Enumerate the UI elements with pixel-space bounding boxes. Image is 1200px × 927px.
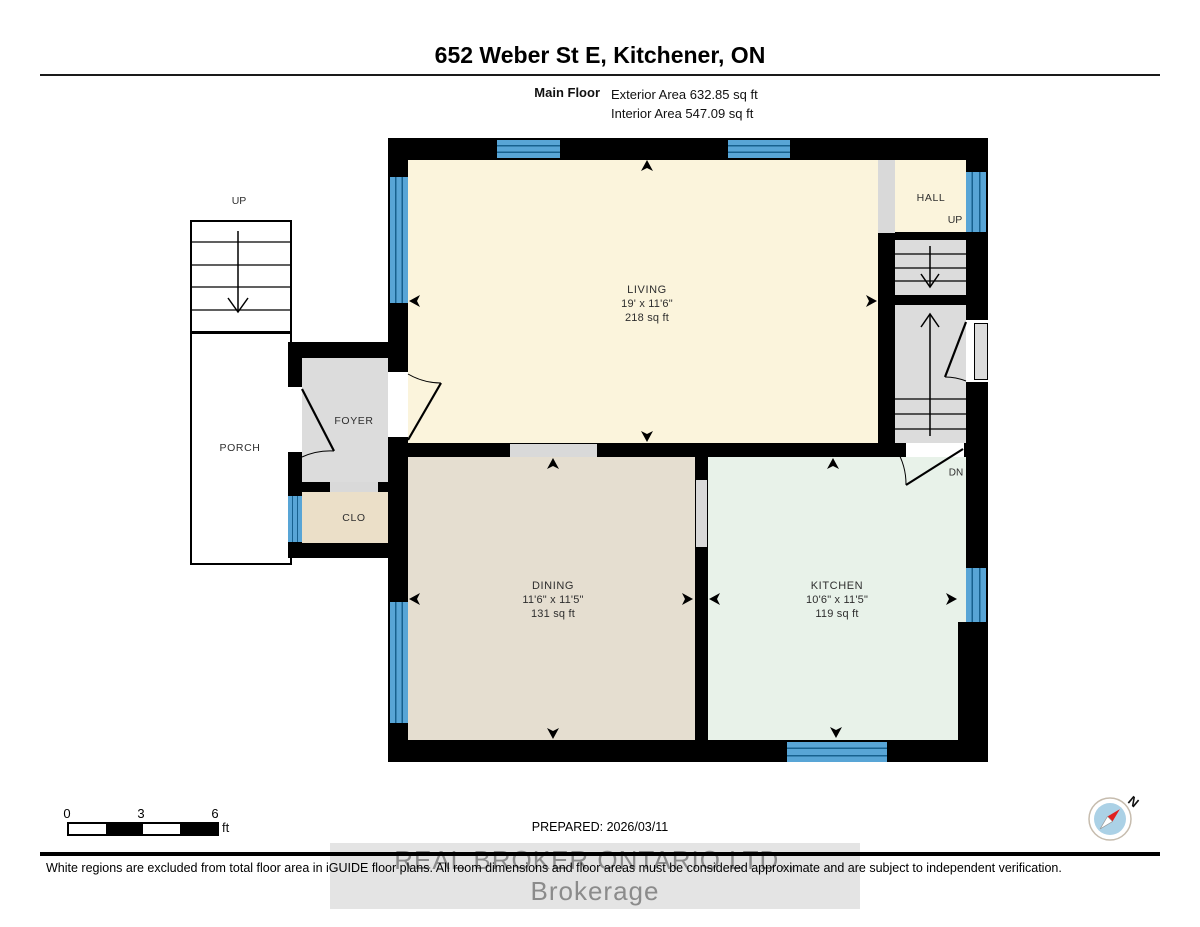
exterior-stairs <box>190 220 292 333</box>
opening-foyer-closet <box>330 482 378 492</box>
compass-needle-north <box>1108 809 1120 821</box>
opening-dining-kitchen <box>696 480 707 547</box>
stairs-dn-label: DN <box>949 468 963 479</box>
wall-right <box>966 160 988 762</box>
dining-area: 131 sq ft <box>522 607 583 621</box>
window <box>497 140 560 158</box>
exterior-area: Exterior Area 632.85 sq ft <box>611 85 758 104</box>
kitchen-label: KITCHEN 10'6" x 11'5" 119 sq ft <box>806 579 868 621</box>
stair-upper-run <box>895 240 966 295</box>
scale-segment <box>143 824 180 834</box>
wall-kitchen-notch <box>958 622 968 742</box>
wall-top <box>388 138 988 160</box>
exterior-stairs-up-label: UP <box>232 195 247 207</box>
doorway-porch-foyer <box>288 387 302 452</box>
floor-areas: Exterior Area 632.85 sq ft Interior Area… <box>611 85 758 123</box>
window <box>390 602 408 723</box>
hall-up-label: UP <box>948 214 963 226</box>
porch-label: PORCH <box>220 442 261 454</box>
page-title: 652 Weber St E, Kitchener, ON <box>0 42 1200 69</box>
window <box>966 172 986 232</box>
dining-name: DINING <box>522 579 583 593</box>
compass-face <box>1094 803 1126 835</box>
wall-living-stairs <box>878 232 895 443</box>
prepared-date: PREPARED: 2026/03/11 <box>450 820 750 834</box>
kitchen-name: KITCHEN <box>806 579 868 593</box>
footer-divider <box>40 852 1160 856</box>
floor-name: Main Floor <box>400 85 600 100</box>
scale-unit: ft <box>222 820 229 835</box>
living-dims: 19' x 11'6" <box>621 297 673 311</box>
compass-ring <box>1089 798 1131 840</box>
floor-plan-page: 652 Weber St E, Kitchener, ON Main Floor… <box>0 0 1200 927</box>
kitchen-dims: 10'6" x 11'5" <box>806 593 868 607</box>
header-divider <box>40 74 1160 76</box>
scale-segment <box>106 824 143 834</box>
wall-foyer-bottom <box>288 543 408 558</box>
wall-stairs-divider <box>895 295 966 305</box>
foyer-label: FOYER <box>334 415 373 427</box>
living-area: 218 sq ft <box>621 311 673 325</box>
dining-label: DINING 11'6" x 11'5" 131 sq ft <box>522 579 583 621</box>
scale-segment <box>69 824 106 834</box>
scale-bar <box>67 822 219 836</box>
compass-needle-south <box>1100 817 1112 829</box>
window <box>787 742 887 762</box>
window <box>288 496 302 542</box>
closet-label: CLO <box>342 512 365 524</box>
scale-tick-6: 6 <box>211 806 218 821</box>
stair-lower-run <box>895 305 966 443</box>
kitchen-area: 119 sq ft <box>806 607 868 621</box>
wall-bottom <box>388 740 988 762</box>
doorway-kitchen-stairs <box>906 443 964 457</box>
wall-foyer-top <box>288 342 408 358</box>
wall-hall-stairs <box>895 232 966 240</box>
opening-living-dining <box>510 444 597 457</box>
window <box>390 177 408 303</box>
doorway-foyer-living <box>388 372 408 437</box>
scale-segment <box>180 824 217 834</box>
disclaimer-text: White regions are excluded from total fl… <box>46 861 1062 875</box>
living-label: LIVING 19' x 11'6" 218 sq ft <box>621 283 673 325</box>
window <box>966 568 986 622</box>
window <box>728 140 790 158</box>
opening-living-hall <box>878 160 895 233</box>
exterior-door-panel <box>974 323 988 380</box>
compass-n-label: N <box>1125 793 1142 811</box>
hall-label: HALL <box>917 192 946 204</box>
interior-area: Interior Area 547.09 sq ft <box>611 104 758 123</box>
scale-tick-0: 0 <box>63 806 70 821</box>
compass: N <box>1089 793 1142 840</box>
living-name: LIVING <box>621 283 673 297</box>
wall-mid-horizontal <box>388 443 966 457</box>
scale-tick-3: 3 <box>137 806 144 821</box>
dining-dims: 11'6" x 11'5" <box>522 593 583 607</box>
